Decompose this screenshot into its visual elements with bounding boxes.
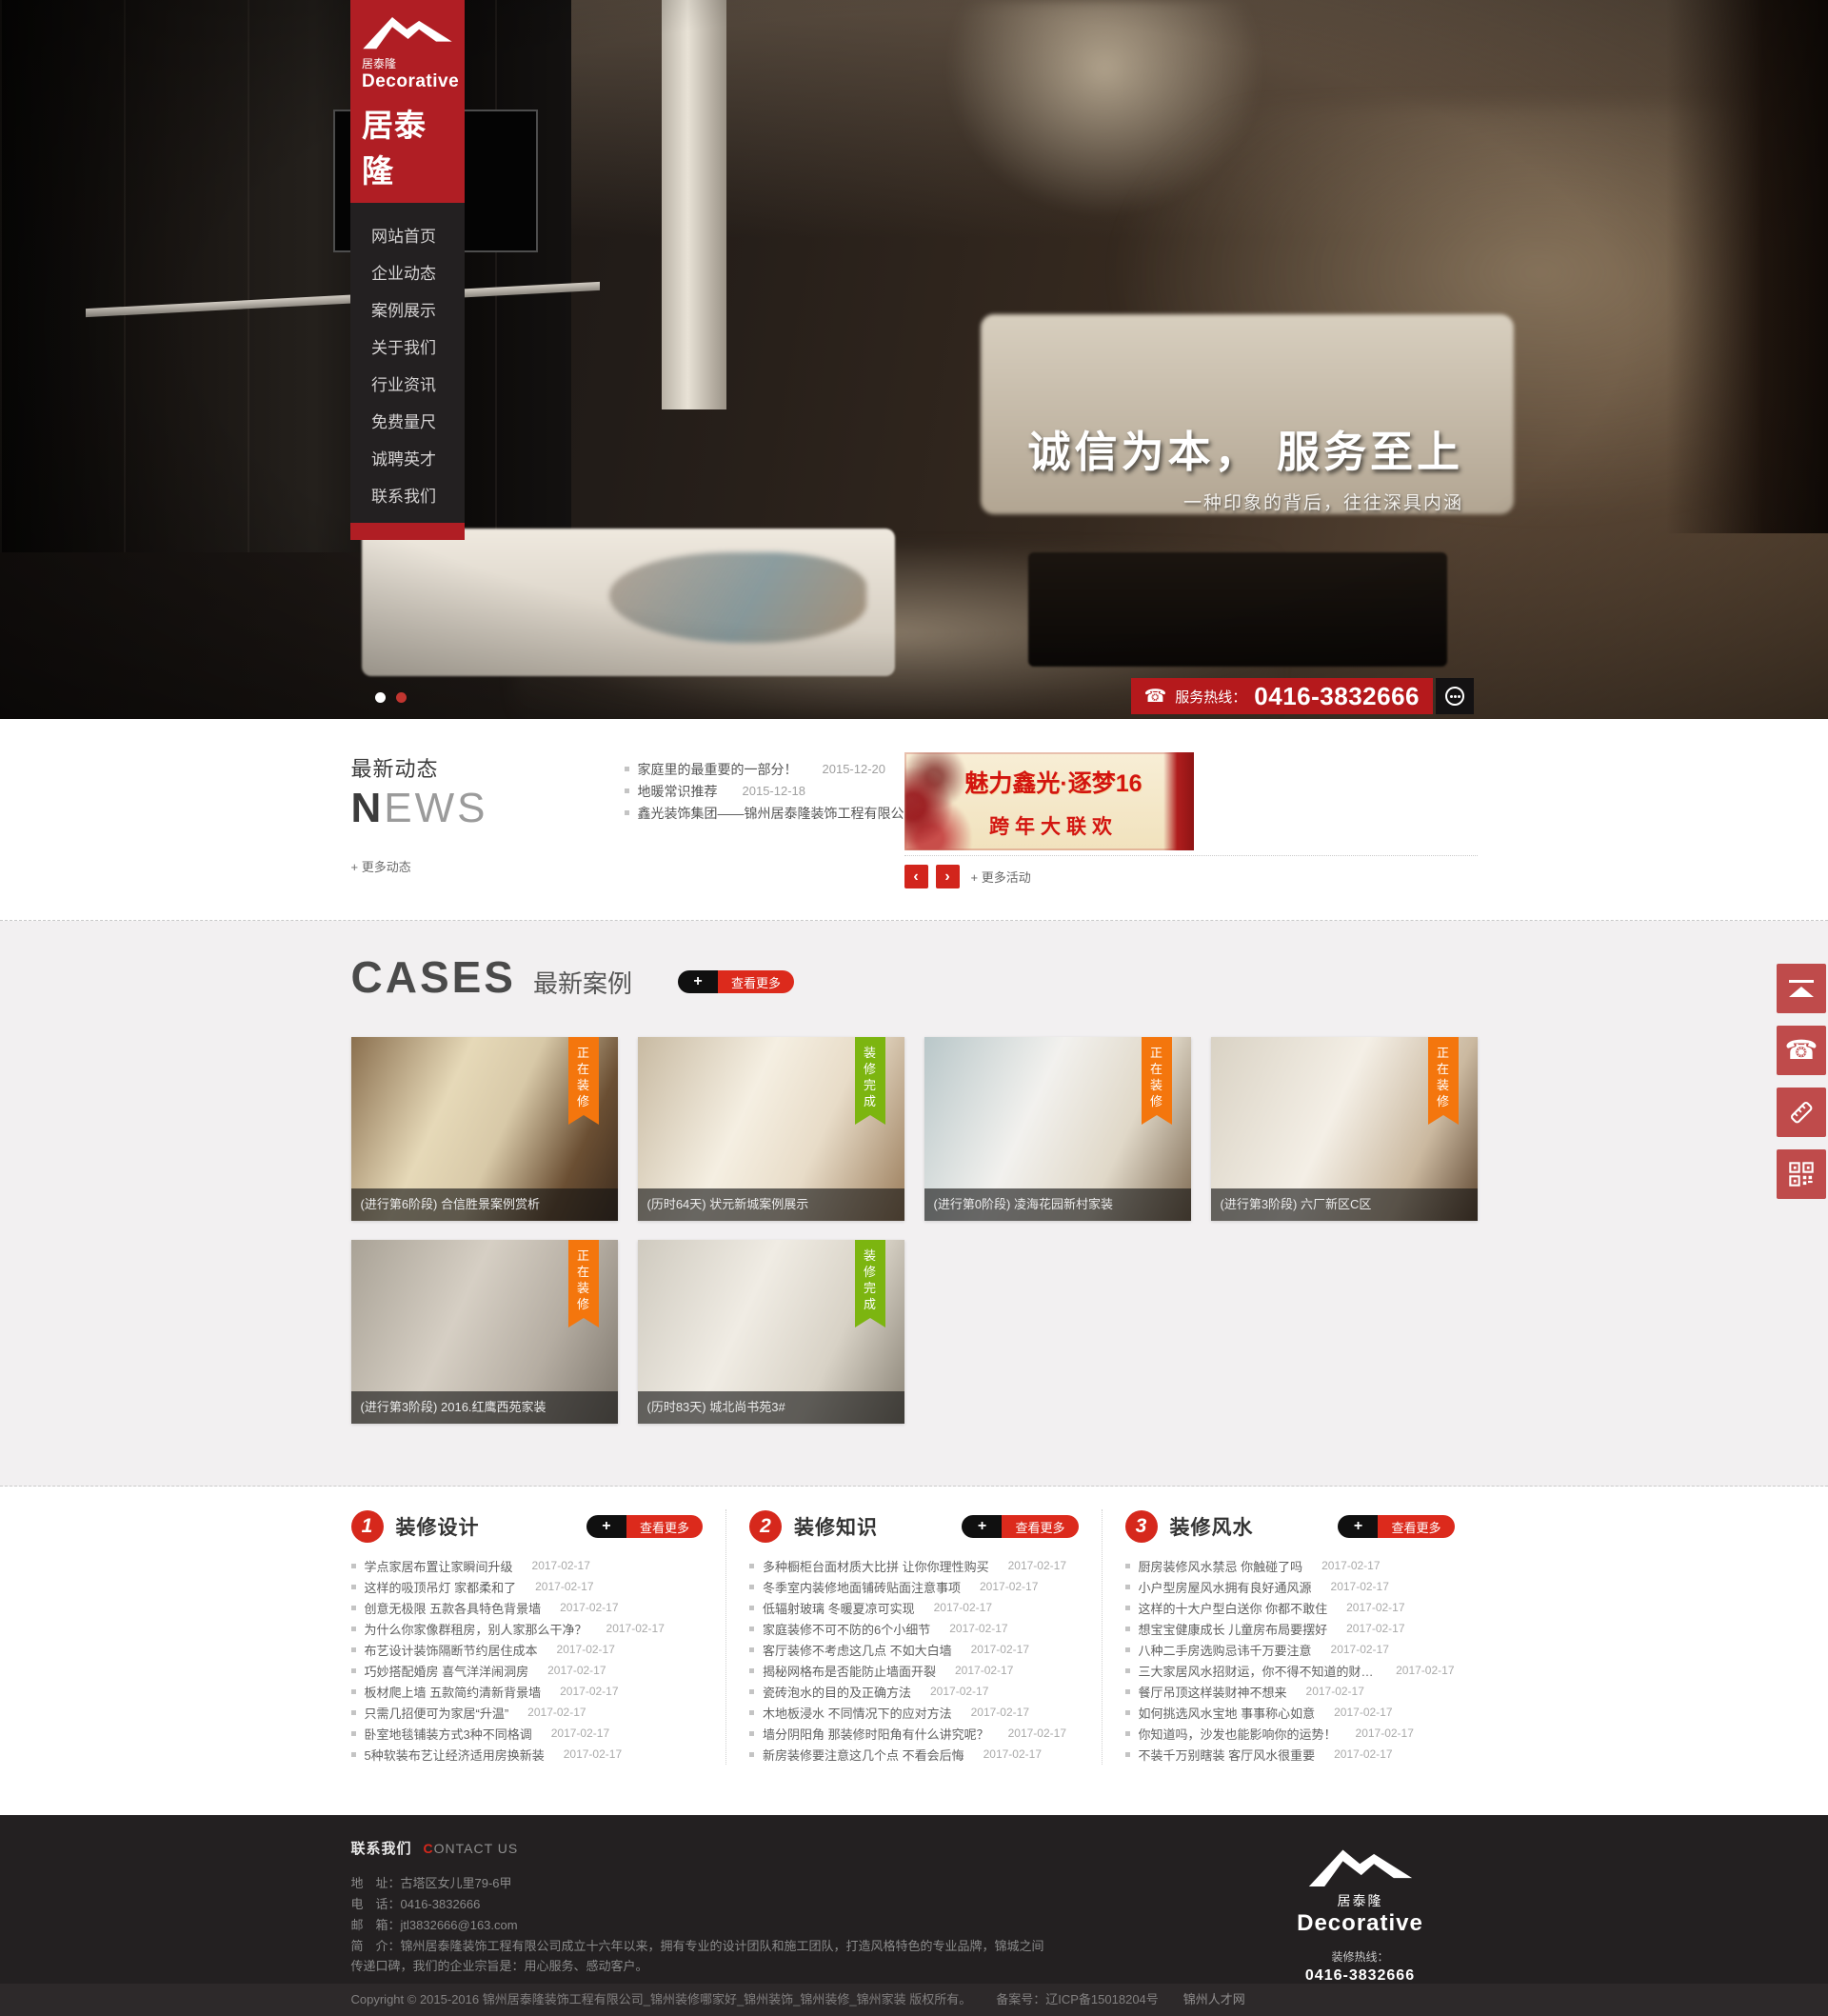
case-card[interactable]: 正在装修 (进行第0阶段) 凌海花园新村家装 <box>924 1037 1191 1221</box>
bullet-icon <box>749 1689 754 1694</box>
article-column-fengshui: 3 装修风水 + 查看更多 厨房装修风水禁忌 你触碰了吗2017-02-17 小… <box>1102 1509 1478 1765</box>
plus-icon: + <box>678 970 718 993</box>
status-ribbon: 装修完成 <box>855 1037 885 1115</box>
copyright-text: Copyright © 2015-2016 锦州居泰隆装饰工程有限公司_锦州装修… <box>351 1992 972 2006</box>
plus-icon: + <box>586 1515 626 1538</box>
phone-icon: ☎ <box>1144 686 1167 708</box>
article-item[interactable]: 冬季室内装修地面铺砖贴面注意事项2017-02-17 <box>749 1576 1079 1597</box>
news-list: 家庭里的最重要的一部分！ 2015-12-20 地暖常识推荐 2015-12-1… <box>625 758 901 824</box>
slider-dots <box>375 692 407 703</box>
case-card[interactable]: 装修完成 (历时64天) 状元新城案例展示 <box>638 1037 904 1221</box>
icp-number: 备案号：辽ICP备15018204号 <box>996 1992 1159 2006</box>
article-item[interactable]: 你知道吗，沙发也能影响你的运势！2017-02-17 <box>1125 1723 1455 1744</box>
news-section: 最新动态 NEWS + 更多动态 家庭里的最重要的一部分！ 2015-12-20… <box>0 719 1828 921</box>
nav-item-industry-info[interactable]: 行业资讯 <box>350 365 465 402</box>
column-view-more-button[interactable]: + 查看更多 <box>962 1515 1078 1538</box>
cases-view-more-button[interactable]: + 查看更多 <box>678 970 794 993</box>
bullet-icon <box>351 1668 356 1673</box>
bullet-icon <box>1125 1647 1130 1652</box>
article-item[interactable]: 八种二手房选购忌讳千万要注意2017-02-17 <box>1125 1639 1455 1660</box>
news-item-date: 2015-12-20 <box>823 762 886 776</box>
article-item[interactable]: 板材爬上墙 五款简约清新背景墙2017-02-17 <box>351 1681 703 1702</box>
footer-email: 邮 箱：jtl3832666@163.com <box>351 1915 1056 1935</box>
case-card[interactable]: 正在装修 (进行第3阶段) 六厂新区C区 <box>1211 1037 1478 1221</box>
footer: 联系我们 CONTACT US 地 址：古塔区女儿里79-6甲 电 话：0416… <box>0 1815 1828 1984</box>
bullet-icon <box>351 1564 356 1568</box>
article-list: 多种橱柜台面材质大比拼 让你你理性购买2017-02-17 冬季室内装修地面铺砖… <box>749 1555 1079 1765</box>
chat-button[interactable] <box>1436 678 1474 714</box>
status-ribbon: 正在装修 <box>568 1240 599 1318</box>
bullet-icon <box>625 767 629 771</box>
footer-hotline-label: 装修热线： <box>1270 1948 1451 1965</box>
status-ribbon: 装修完成 <box>855 1240 885 1318</box>
logo-text-small: 居泰隆 <box>362 55 453 71</box>
number-badge: 3 <box>1125 1510 1158 1543</box>
bullet-icon <box>1125 1689 1130 1694</box>
case-caption: (进行第0阶段) 凌海花园新村家装 <box>924 1188 1191 1221</box>
plus-icon: + <box>962 1515 1002 1538</box>
phone-icon: ☎ <box>1785 1037 1818 1064</box>
hero-slogan-sub: 一种印象的背后，往往深具内涵 <box>1027 489 1463 514</box>
news-title-en: NEWS <box>351 785 608 832</box>
nav-item-about[interactable]: 关于我们 <box>350 328 465 365</box>
case-card[interactable]: 装修完成 (历时83天) 城北尚书苑3# <box>638 1240 904 1424</box>
bullet-icon <box>1125 1710 1130 1715</box>
hero-slogan-main: 诚信为本， 服务至上 <box>1027 417 1463 479</box>
bullet-icon <box>749 1606 754 1610</box>
article-item[interactable]: 为什么你家像群租房，别人家那么干净？2017-02-17 <box>351 1618 703 1639</box>
nav-item-recruit[interactable]: 诚聘英才 <box>350 439 465 476</box>
footer-address: 地 址：古塔区女儿里79-6甲 <box>351 1873 1056 1893</box>
status-ribbon: 正在装修 <box>568 1037 599 1115</box>
article-item[interactable]: 如何挑选风水宝地 事事称心如意2017-02-17 <box>1125 1702 1455 1723</box>
column-header: 2 装修知识 + 查看更多 <box>749 1509 1079 1544</box>
cases-subtitle: 最新案例 <box>533 965 632 1000</box>
article-item[interactable]: 揭秘网格布是否能防止墙面开裂2017-02-17 <box>749 1660 1079 1681</box>
article-item[interactable]: 布艺设计装饰隔断节约居住成本2017-02-17 <box>351 1639 703 1660</box>
news-item-title: 鑫光装饰集团——锦州居泰隆装饰工程有限公司 <box>638 804 918 823</box>
article-item[interactable]: 新房装修要注意这几个点 不看会后悔2017-02-17 <box>749 1744 1079 1765</box>
article-item[interactable]: 木地板浸水 不同情况下的应对方法2017-02-17 <box>749 1702 1079 1723</box>
column-view-more-button[interactable]: + 查看更多 <box>586 1515 703 1538</box>
status-ribbon: 正在装修 <box>1142 1037 1172 1115</box>
news-item[interactable]: 鑫光装饰集团——锦州居泰隆装饰工程有限公司 2015-12-16 <box>625 802 901 824</box>
banner-title: 魅力鑫光·逐梦16 <box>933 765 1175 799</box>
footer-phone: 电 话：0416-3832666 <box>351 1894 1056 1914</box>
bullet-icon <box>1125 1752 1130 1757</box>
plus-icon: + <box>1338 1515 1378 1538</box>
news-item-title: 家庭里的最重要的一部分！ <box>638 760 798 779</box>
bullet-icon <box>1125 1627 1130 1631</box>
article-item[interactable]: 三大家居风水招财运，你不得不知道的财源广进2017-02-17 <box>1125 1660 1455 1681</box>
bullet-icon <box>351 1606 356 1610</box>
bullet-icon <box>749 1710 754 1715</box>
hero-slider: 居泰隆 Decorative 居泰隆 网站首页 企业动态 案例展示 关于我们 行… <box>0 0 1828 719</box>
news-more-link[interactable]: + 更多动态 <box>351 857 411 875</box>
bullet-icon <box>749 1647 754 1652</box>
cases-title: CASES <box>351 951 516 1003</box>
bullet-icon <box>749 1585 754 1589</box>
back-to-top-icon <box>1789 980 1814 997</box>
copyright-bar: Copyright © 2015-2016 锦州居泰隆装饰工程有限公司_锦州装修… <box>0 1984 1828 2016</box>
article-item[interactable]: 卧室地毯铺装方式3种不同格调2017-02-17 <box>351 1723 703 1744</box>
bullet-icon <box>625 788 629 793</box>
cases-heading: CASES 最新案例 + 查看更多 <box>351 951 1478 1003</box>
case-caption: (历时64天) 状元新城案例展示 <box>638 1188 904 1221</box>
qrcode-icon <box>1788 1161 1815 1188</box>
cases-grid: 正在装修 (进行第6阶段) 合信胜景案例赏析 装修完成 (历时64天) 状元新城… <box>351 1037 1478 1424</box>
nav-item-home[interactable]: 网站首页 <box>350 216 465 253</box>
nav-item-free-measure[interactable]: 免费量尺 <box>350 402 465 439</box>
nav-footer-strip <box>350 523 465 540</box>
bullet-icon <box>749 1752 754 1757</box>
hotline-red-bar: ☎ 服务热线： 0416-3832666 <box>1131 678 1433 714</box>
column-header: 3 装修风水 + 查看更多 <box>1125 1509 1455 1544</box>
news-item[interactable]: 地暖常识推荐 2015-12-18 <box>625 780 901 802</box>
mountain-logo-icon <box>362 13 453 51</box>
column-title: 装修风水 <box>1170 1512 1254 1541</box>
article-item[interactable]: 学点家居布置让家瞬间升级2017-02-17 <box>351 1555 703 1576</box>
hotline-label: 服务热线： <box>1175 687 1246 707</box>
case-caption: (进行第3阶段) 六厂新区C区 <box>1211 1188 1478 1221</box>
case-caption: (进行第3阶段) 2016.红鹰西苑家装 <box>351 1391 618 1424</box>
logo-text-en: Decorative <box>362 71 453 92</box>
qrcode-button[interactable] <box>1777 1149 1826 1199</box>
case-card[interactable]: 正在装修 (进行第6阶段) 合信胜景案例赏析 <box>351 1037 618 1221</box>
bullet-icon <box>351 1752 356 1757</box>
page: 居泰隆 Decorative 居泰隆 网站首页 企业动态 案例展示 关于我们 行… <box>0 0 1828 2016</box>
article-item[interactable]: 厨房装修风水禁忌 你触碰了吗2017-02-17 <box>1125 1555 1455 1576</box>
phone-button[interactable]: ☎ <box>1777 1026 1826 1075</box>
hero-slogan: 诚信为本， 服务至上 一种印象的背后，往往深具内涵 <box>1027 417 1463 514</box>
column-header: 1 装修设计 + 查看更多 <box>351 1509 703 1544</box>
chat-icon <box>1445 687 1464 706</box>
article-list: 学点家居布置让家瞬间升级2017-02-17 这样的吸顶吊灯 家都柔和了2017… <box>351 1555 703 1765</box>
bullet-icon <box>749 1564 754 1568</box>
column-view-more-button[interactable]: + 查看更多 <box>1338 1515 1454 1538</box>
banner-nav: ‹ › + 更多活动 <box>904 865 1478 888</box>
column-title: 装修设计 <box>396 1512 480 1541</box>
floating-toolbar: ☎ <box>1777 964 1826 1199</box>
sidebar: 居泰隆 Decorative 居泰隆 网站首页 企业动态 案例展示 关于我们 行… <box>350 0 465 540</box>
news-item-title: 地暖常识推荐 <box>638 782 718 801</box>
bullet-icon <box>351 1585 356 1589</box>
back-to-top-button[interactable] <box>1777 964 1826 1013</box>
news-item-date: 2015-12-18 <box>743 784 806 798</box>
activity-banner-area: 魅力鑫光·逐梦16 跨年大联欢 ‹ › + 更多活动 <box>904 752 1478 888</box>
article-item[interactable]: 这样的十大户型白送你 你都不敢住2017-02-17 <box>1125 1597 1455 1618</box>
article-item[interactable]: 餐厅吊顶这样装财神不想来2017-02-17 <box>1125 1681 1455 1702</box>
news-item[interactable]: 家庭里的最重要的一部分！ 2015-12-20 <box>625 758 901 780</box>
bullet-icon <box>1125 1731 1130 1736</box>
hotline-number: 0416-3832666 <box>1254 682 1420 711</box>
article-item[interactable]: 只需几招便可为家居“升温”2017-02-17 <box>351 1702 703 1723</box>
more-activities-link[interactable]: + 更多活动 <box>971 868 1031 886</box>
article-item[interactable]: 这样的吸顶吊灯 家都柔和了2017-02-17 <box>351 1576 703 1597</box>
footer-hotline-number: 0416-3832666 <box>1270 1967 1451 1985</box>
bullet-icon <box>1125 1668 1130 1673</box>
nav-item-company-news[interactable]: 企业动态 <box>350 253 465 290</box>
case-caption: (历时83天) 城北尚书苑3# <box>638 1391 904 1424</box>
bullet-icon <box>351 1627 356 1631</box>
case-caption: (进行第6阶段) 合信胜景案例赏析 <box>351 1188 618 1221</box>
main-nav: 网站首页 企业动态 案例展示 关于我们 行业资讯 免费量尺 诚聘英才 联系我们 <box>350 203 465 523</box>
news-title-cn: 最新动态 <box>351 752 608 783</box>
mountain-logo-icon <box>1307 1846 1414 1889</box>
hotline-bar: ☎ 服务热线： 0416-3832666 <box>1131 678 1474 714</box>
article-column-design: 1 装修设计 + 查看更多 学点家居布置让家瞬间升级2017-02-17 这样的… <box>351 1509 725 1765</box>
bullet-icon <box>749 1731 754 1736</box>
bullet-icon <box>351 1647 356 1652</box>
footer-logo-block: 居泰隆 Decorative 装修热线： 0416-3832666 <box>1270 1846 1451 1985</box>
article-item[interactable]: 低辐射玻璃 冬暖夏凉可实现2017-02-17 <box>749 1597 1079 1618</box>
slider-dot-1[interactable] <box>375 692 386 703</box>
talent-site-link[interactable]: 锦州人才网 <box>1183 1992 1245 2006</box>
article-item[interactable]: 5种软装布艺让经济适用房换新装2017-02-17 <box>351 1744 703 1765</box>
article-item[interactable]: 客厅装修不考虑这几点 不如大白墙2017-02-17 <box>749 1639 1079 1660</box>
slider-dot-2[interactable] <box>396 692 407 703</box>
article-item[interactable]: 瓷砖泡水的目的及正确方法2017-02-17 <box>749 1681 1079 1702</box>
footer-logo-cn: 居泰隆 <box>1270 1891 1451 1910</box>
bullet-icon <box>1125 1606 1130 1610</box>
article-column-knowledge: 2 装修知识 + 查看更多 多种橱柜台面材质大比拼 让你你理性购买2017-02… <box>725 1509 1102 1765</box>
article-item[interactable]: 创意无极限 五款各具特色背景墙2017-02-17 <box>351 1597 703 1618</box>
logo-text-large: 居泰隆 <box>362 100 453 191</box>
article-item[interactable]: 巧妙搭配婚房 喜气洋洋闹洞房2017-02-17 <box>351 1660 703 1681</box>
banner-next-button[interactable]: › <box>936 865 960 888</box>
article-list: 厨房装修风水禁忌 你触碰了吗2017-02-17 小户型房屋风水拥有良好通风源2… <box>1125 1555 1455 1765</box>
articles-section: 1 装修设计 + 查看更多 学点家居布置让家瞬间升级2017-02-17 这样的… <box>0 1487 1828 1815</box>
bullet-icon <box>749 1668 754 1673</box>
status-ribbon: 正在装修 <box>1428 1037 1459 1115</box>
banner-prev-button[interactable]: ‹ <box>904 865 928 888</box>
bullet-icon <box>351 1689 356 1694</box>
article-item[interactable]: 小户型房屋风水拥有良好通风源2017-02-17 <box>1125 1576 1455 1597</box>
bullet-icon <box>1125 1585 1130 1589</box>
nav-item-contact[interactable]: 联系我们 <box>350 476 465 513</box>
bullet-icon <box>351 1710 356 1715</box>
activity-banner[interactable]: 魅力鑫光·逐梦16 跨年大联欢 <box>904 752 1194 850</box>
bullet-icon <box>351 1731 356 1736</box>
measure-button[interactable] <box>1777 1088 1826 1137</box>
article-item[interactable]: 多种橱柜台面材质大比拼 让你你理性购买2017-02-17 <box>749 1555 1079 1576</box>
number-badge: 1 <box>351 1510 384 1543</box>
bullet-icon <box>1125 1564 1130 1568</box>
footer-logo-en: Decorative <box>1270 1910 1451 1937</box>
banner-subtitle: 跨年大联欢 <box>933 811 1175 840</box>
hero-photo-layer <box>0 0 1828 719</box>
article-item[interactable]: 想宝宝健康成长 儿童房布局要摆好2017-02-17 <box>1125 1618 1455 1639</box>
article-item[interactable]: 墙分阴阳角 那装修时阳角有什么讲究呢？2017-02-17 <box>749 1723 1079 1744</box>
bullet-icon <box>625 810 629 815</box>
logo[interactable]: 居泰隆 Decorative 居泰隆 <box>350 0 465 203</box>
article-item[interactable]: 不装千万别瞎装 客厅风水很重要2017-02-17 <box>1125 1744 1455 1765</box>
number-badge: 2 <box>749 1510 782 1543</box>
nav-item-cases[interactable]: 案例展示 <box>350 290 465 328</box>
news-heading: 最新动态 NEWS + 更多动态 <box>351 752 608 876</box>
ruler-icon <box>1787 1098 1816 1127</box>
column-title: 装修知识 <box>794 1512 878 1541</box>
bullet-icon <box>749 1627 754 1631</box>
cases-section: CASES 最新案例 + 查看更多 正在装修 (进行第6阶段) 合信胜景案例赏析… <box>0 921 1828 1487</box>
case-card[interactable]: 正在装修 (进行第3阶段) 2016.红鹰西苑家装 <box>351 1240 618 1424</box>
dotted-divider <box>904 855 1478 856</box>
article-item[interactable]: 家庭装修不可不防的6个小细节2017-02-17 <box>749 1618 1079 1639</box>
footer-intro: 简 介：锦州居泰隆装饰工程有限公司成立十六年以来，拥有专业的设计团队和施工团队，… <box>351 1936 1056 1976</box>
